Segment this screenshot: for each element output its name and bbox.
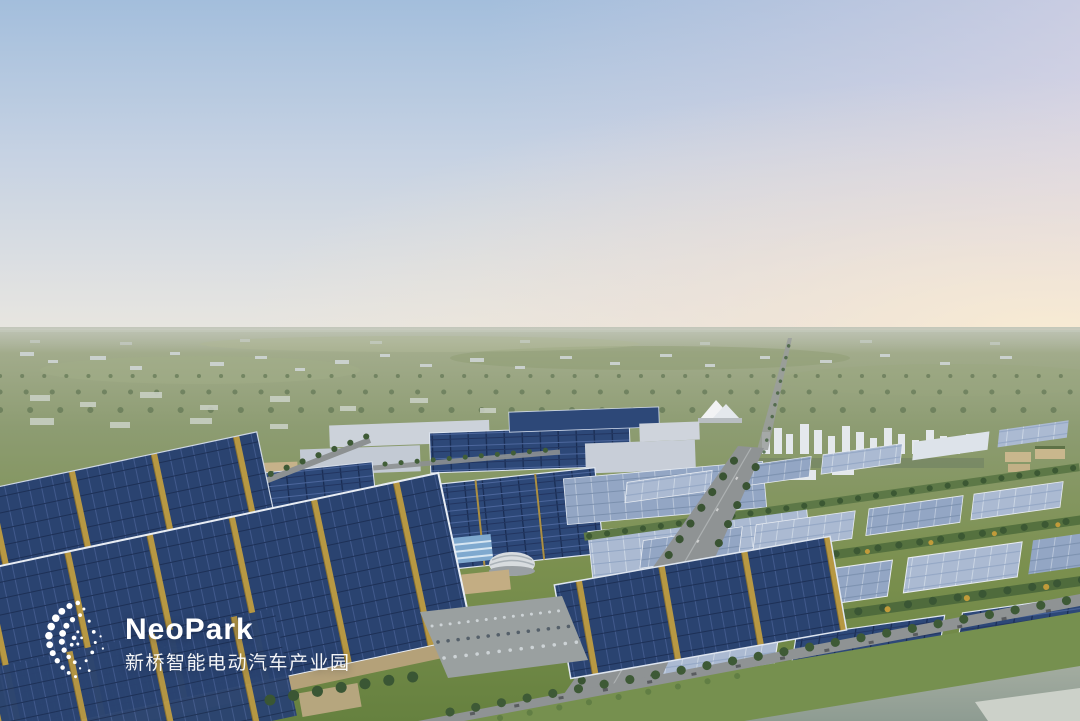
neopark-logo-dot-swirl-icon (36, 596, 112, 692)
neopark-aerial-render: NeoPark 新桥智能电动汽车产业园 (0, 0, 1080, 721)
neopark-logo: NeoPark 新桥智能电动汽车产业园 (36, 596, 351, 692)
logo-subtitle: 新桥智能电动汽车产业园 (125, 654, 351, 673)
sky-layer (0, 0, 1080, 345)
neopark-logo-text: NeoPark 新桥智能电动汽车产业园 (125, 615, 351, 673)
logo-wordmark: NeoPark (125, 615, 351, 645)
